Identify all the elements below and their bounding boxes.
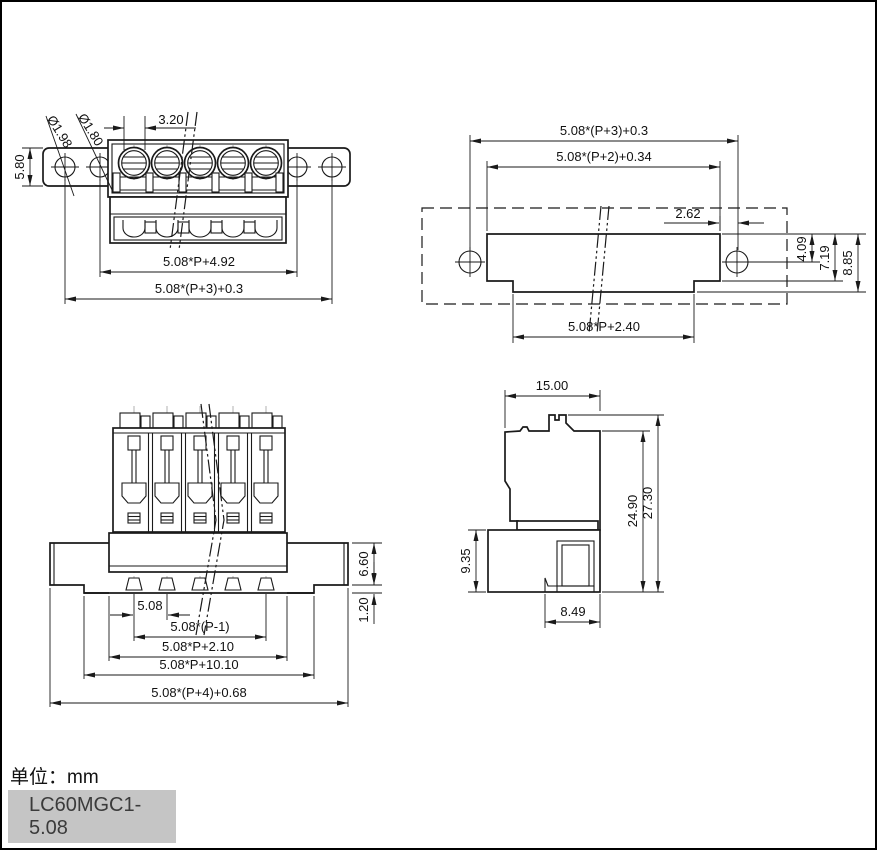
drawing-sheet: 5.80 3.20 Ø1.98 Ø1.80 5.08*P+4.92 5.08*(… [0, 0, 877, 850]
view-front-plug: 6.60 1.20 5.08 5.08*(P-1) 5.08*P+2.10 5.… [50, 404, 382, 707]
side-upper-body [505, 415, 600, 530]
dim-plate-thickness: 1.20 [356, 597, 371, 622]
dim-overall-height: 27.30 [640, 487, 655, 520]
dim-flange-thickness: 6.60 [356, 551, 371, 576]
dim-overall-width-c: 5.08*(P+4)+0.68 [151, 685, 246, 700]
wire-housing [110, 197, 286, 243]
dim-body-depth: 7.19 [817, 245, 832, 270]
dimensions-top-view: 5.08*(P+3)+0.3 5.08*(P+2)+0.34 2.62 4.09… [470, 123, 866, 343]
dim-hole-center-depth: 4.09 [794, 236, 809, 261]
top-caps [120, 413, 282, 428]
view-front-flange: 5.80 3.20 Ø1.98 Ø1.80 5.08*P+4.92 5.08*(… [12, 111, 350, 304]
dim-socket-height: 9.35 [458, 548, 473, 573]
dim-body-width-c: 5.08*P+2.10 [162, 639, 234, 654]
view-top: 5.08*(P+3)+0.3 5.08*(P+2)+0.34 2.62 4.09… [422, 123, 866, 343]
dim-screw-slot-width: 3.20 [158, 112, 183, 127]
solder-pins [126, 578, 274, 590]
dim-hole-diameter: Ø1.98 [44, 113, 75, 151]
dim-body-height: 24.90 [625, 495, 640, 528]
technical-drawing: 5.80 3.20 Ø1.98 Ø1.80 5.08*P+4.92 5.08*(… [2, 2, 875, 848]
dim-pin-span: 5.08*(P-1) [170, 619, 229, 634]
dim-overall-width-b: 5.08*(P+3)+0.3 [560, 123, 648, 138]
dim-overall-depth: 8.85 [840, 250, 855, 275]
dim-tongue-width: 5.08*P+2.40 [568, 319, 640, 334]
dim-socket-width: 8.49 [560, 604, 585, 619]
unit-label: 单位：mm [10, 762, 99, 789]
dim-screw-hole-diameter: Ø1.80 [75, 111, 106, 149]
dim-flange-height: 5.80 [12, 154, 27, 179]
dim-body-width-b: 5.08*(P+2)+0.34 [556, 149, 651, 164]
dim-pin-pitch: 5.08 [137, 598, 162, 613]
terminal-screws [119, 148, 282, 179]
part-number-box: LC60MGC1-5.08 [8, 790, 176, 843]
side-lower-body [488, 530, 600, 592]
view-side: 15.00 24.90 27.30 9.35 8.49 [458, 378, 664, 628]
dim-hole-offset: 2.62 [675, 206, 700, 221]
dim-top-width: 15.00 [536, 378, 569, 393]
dim-step-width: 5.08*P+10.10 [159, 657, 238, 672]
side-ledge [517, 521, 598, 530]
part-number: LC60MGC1-5.08 [29, 794, 176, 840]
dim-hole-span: 5.08*P+4.92 [163, 254, 235, 269]
dim-overall-width-a: 5.08*(P+3)+0.3 [155, 281, 243, 296]
